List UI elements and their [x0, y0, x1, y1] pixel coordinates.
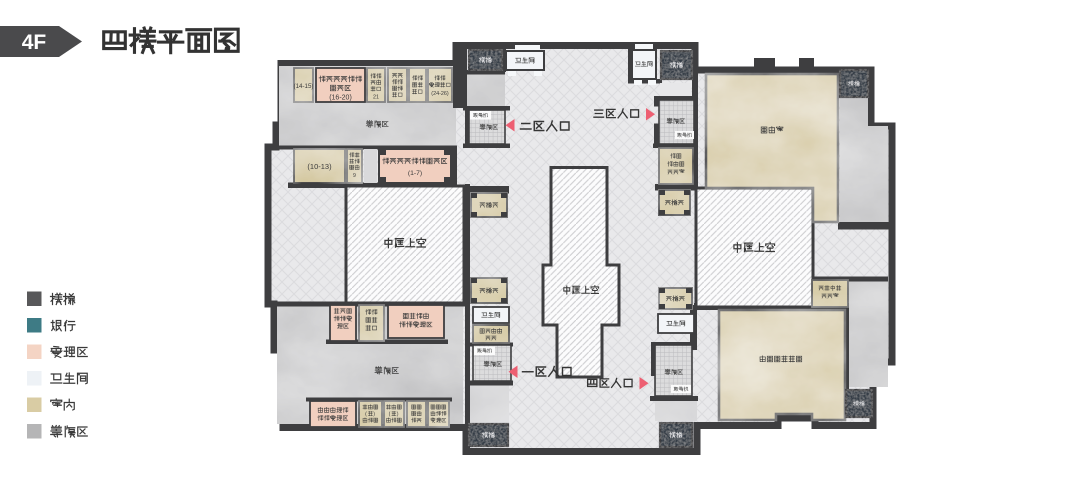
- svg-text:(24-26): (24-26): [431, 91, 449, 97]
- svg-text:21: 21: [373, 95, 379, 101]
- svg-text:(: (: [365, 411, 367, 417]
- svg-text:9: 9: [353, 173, 356, 179]
- svg-text:(: (: [389, 411, 391, 417]
- svg-text:(10-13): (10-13): [307, 162, 332, 171]
- svg-text:(14-15): (14-15): [294, 83, 314, 90]
- svg-text:): ): [373, 411, 375, 417]
- svg-text:4F: 4F: [22, 31, 47, 54]
- svg-text:(1-7): (1-7): [408, 170, 422, 177]
- svg-text:(16-20): (16-20): [329, 95, 352, 102]
- svg-text:): ): [397, 411, 399, 417]
